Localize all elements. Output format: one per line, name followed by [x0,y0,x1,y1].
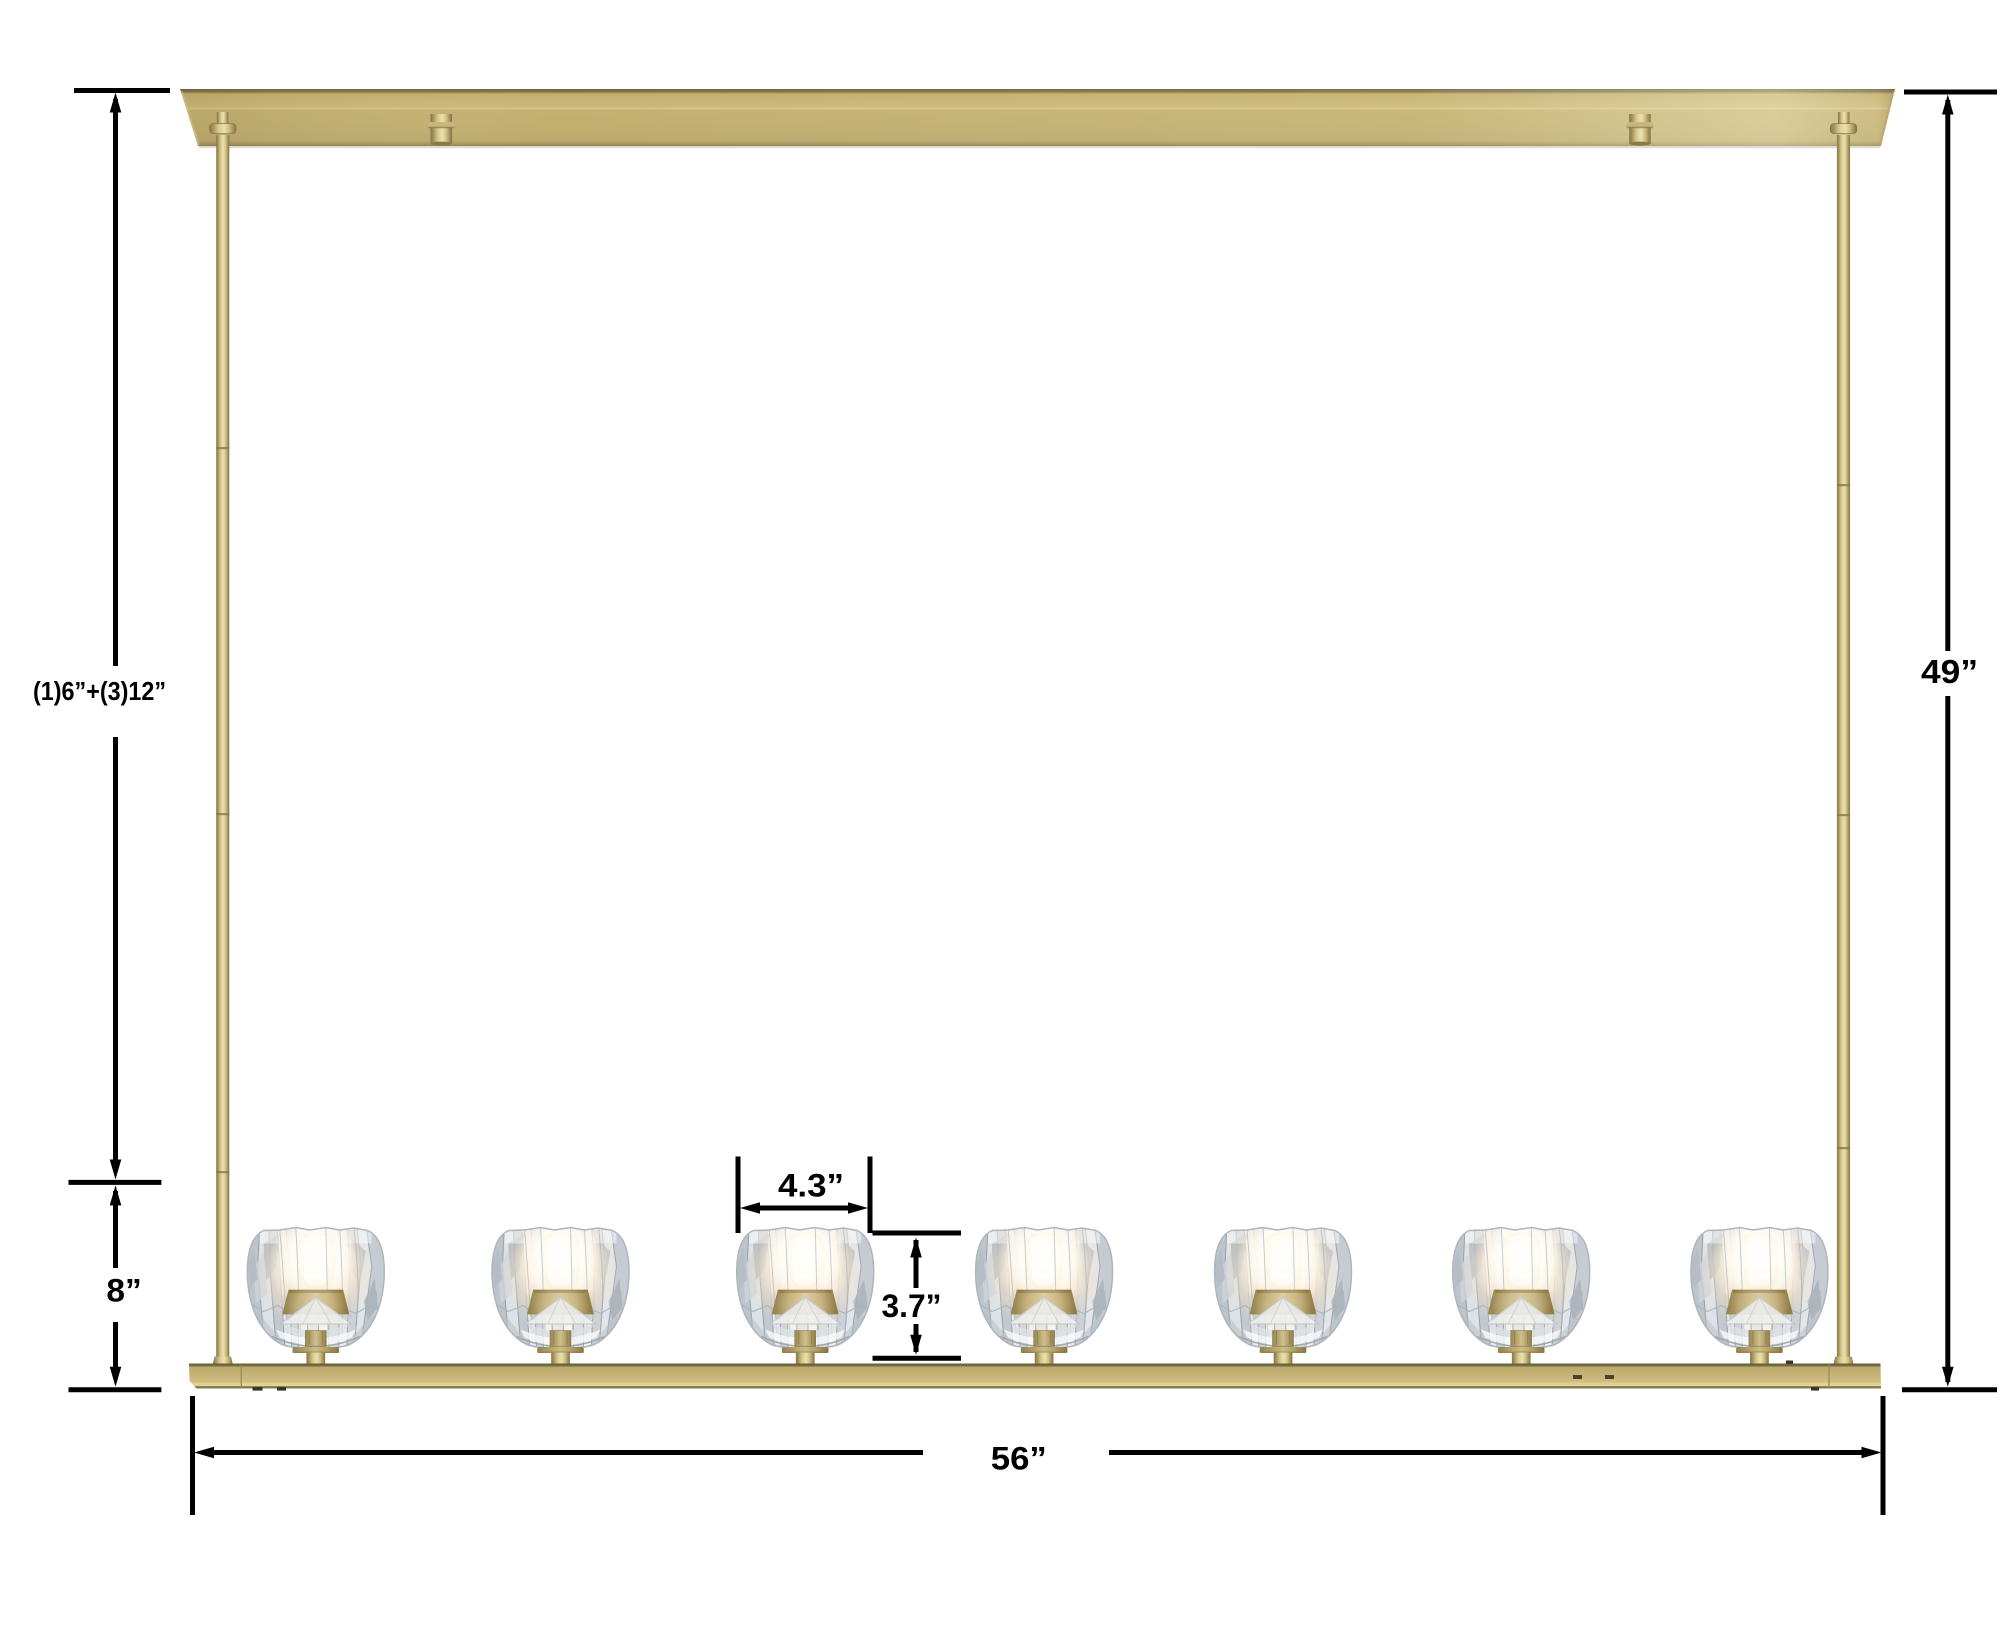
svg-text:49”: 49” [1921,653,1978,690]
svg-text:8”: 8” [106,1273,141,1309]
svg-text:3.7”: 3.7” [882,1288,942,1324]
svg-text:(1)6”+(3)12”: (1)6”+(3)12” [33,676,166,706]
svg-text:4.3”: 4.3” [778,1167,844,1203]
svg-text:56”: 56” [991,1441,1047,1477]
